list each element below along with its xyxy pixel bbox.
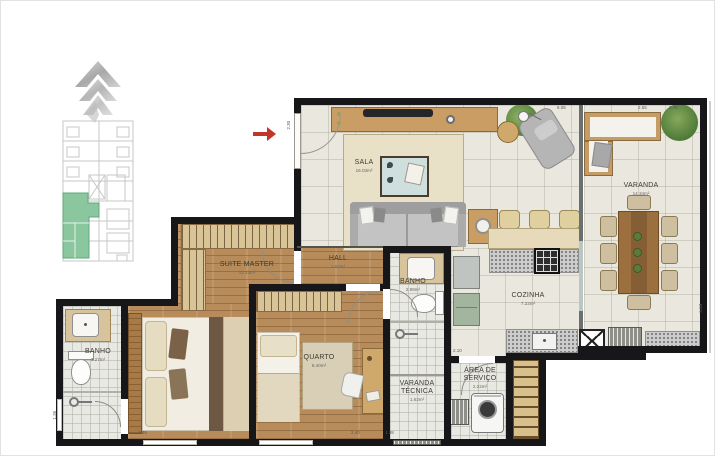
plant-varanda-icon — [661, 104, 698, 141]
dimension-text: 2.10 — [453, 349, 462, 354]
wall-suite-top — [171, 217, 301, 224]
floor-hall — [301, 248, 383, 284]
threshold-sala-hall — [297, 246, 383, 248]
wall-banho-top — [56, 299, 178, 306]
washing-machine-panel — [474, 395, 501, 397]
bar-stool — [499, 210, 520, 229]
wall-sala-left-b — [294, 169, 301, 217]
bar-stool — [529, 210, 550, 229]
kitchen-bar-counter — [488, 228, 581, 249]
bench-cushion — [590, 117, 656, 137]
tv — [363, 109, 433, 117]
closet-suite-top — [181, 224, 299, 249]
kitchen-cabinet — [453, 256, 480, 289]
coffee-table-decor — [387, 162, 393, 168]
divider-varanda-tecnica — [390, 374, 444, 376]
dimension-text: 1.36 — [53, 411, 58, 420]
toilet-bowl — [71, 359, 91, 385]
faucet-icon — [543, 339, 546, 342]
wall-banho-social-top — [383, 246, 451, 253]
shower-divider — [63, 391, 121, 393]
washing-machine-door — [478, 400, 497, 419]
window-suite — [143, 440, 197, 445]
dining-chair — [661, 243, 678, 264]
bed-pillow — [145, 321, 167, 371]
kitchen-counter-left — [489, 249, 534, 273]
stove — [534, 248, 560, 274]
desk-lamp-icon — [367, 356, 372, 361]
faucet-icon — [84, 323, 87, 326]
dining-chair — [661, 216, 678, 237]
round-side-table — [497, 121, 519, 143]
closet-quarto — [256, 291, 342, 312]
entry-door-leaf — [294, 113, 301, 169]
window-quarto — [259, 440, 313, 445]
bed-runner — [209, 317, 223, 431]
bed-pillow — [145, 377, 167, 427]
wall-sala-left-a — [294, 98, 301, 113]
wall-banho-social-right — [444, 246, 451, 356]
dimension-text: 5.58 — [699, 304, 704, 313]
sofa-armrest — [350, 214, 358, 247]
service-ladder — [513, 360, 539, 439]
sofa-pillow-white — [443, 206, 459, 225]
floor-lamp-icon — [518, 111, 529, 122]
sofa-pillow-gray — [430, 207, 443, 222]
louver-varanda-tecnica — [393, 440, 441, 445]
wall-shaft-right — [539, 360, 546, 446]
dining-chair — [627, 295, 651, 310]
wall-shaft-left — [506, 353, 513, 446]
wall-kitchen-bottom — [506, 353, 646, 360]
wall-servico-top-b — [495, 356, 513, 363]
wall-suite-left — [171, 217, 178, 304]
sofa-seam — [406, 214, 408, 247]
highlighted-unit — [63, 193, 99, 258]
dimension-text: 6.05 — [557, 106, 566, 111]
single-bed-pillow — [260, 335, 297, 357]
bed-blanket — [223, 317, 250, 431]
kitchen-counter-right — [559, 249, 579, 273]
table-plant-icon — [633, 232, 642, 241]
bar-stool — [559, 210, 580, 229]
dining-chair — [600, 216, 617, 237]
bed-accent-pillow — [168, 368, 188, 400]
wall-varanda-bottom — [578, 346, 707, 353]
wall-banho-suite-stub — [121, 434, 128, 439]
window-banho-suite — [57, 399, 62, 431]
toilet-tank — [435, 291, 444, 315]
dining-chair — [600, 243, 617, 264]
fridge — [453, 293, 480, 326]
floor-varanda-tecnica — [390, 376, 444, 439]
console-speaker-icon — [446, 115, 455, 124]
dining-chair — [627, 195, 651, 210]
dimension-text: 2.40 — [351, 431, 360, 436]
wall-banho-suite-right — [121, 306, 128, 399]
floor-plan-canvas: SALA 16.03m² VARANDA 14.34m² COZINHA 7.2… — [0, 0, 715, 456]
wall-top — [297, 98, 707, 105]
dimension-text: 2.55 — [638, 106, 647, 111]
entry-arrow-icon — [253, 132, 267, 136]
dimension-text: 2.30 — [287, 121, 292, 130]
wall-banho-social-left-a — [383, 246, 390, 289]
bench-pillow — [591, 142, 612, 168]
bed-headboard — [128, 313, 142, 434]
balcony-rail-line — [709, 101, 711, 353]
glass-sliding-door — [579, 241, 583, 311]
dining-chair — [600, 270, 617, 291]
entry-arrow-head-icon — [267, 127, 276, 141]
dimension-text: 1.38 — [385, 431, 394, 436]
sofa-pillow-gray — [373, 207, 386, 222]
single-bed-blanket — [258, 373, 299, 422]
desk — [362, 348, 384, 414]
wall-banho-social-left-b — [383, 319, 390, 439]
sofa-pillow-white — [359, 206, 375, 225]
wall-servico-left — [444, 356, 451, 446]
coffee-table-decor — [387, 177, 393, 183]
bathroom-sink — [407, 257, 435, 280]
shower-arm — [78, 401, 92, 403]
dimension-text: 2.76 — [669, 106, 678, 111]
dining-chair — [661, 270, 678, 291]
wall-quarto-top-a — [249, 284, 346, 291]
closet-suite-side — [181, 249, 206, 311]
wall-suite-quarto-divider — [249, 284, 256, 439]
fridge-handle — [456, 307, 477, 308]
dimension-text: 2.89 — [138, 431, 147, 436]
building-key-plan — [53, 113, 145, 271]
table-plant-icon — [633, 248, 642, 257]
sofa-armrest — [458, 214, 466, 247]
shower-arm — [404, 333, 418, 335]
wall-servico-top-a — [451, 356, 459, 363]
bed-accent-pillow — [168, 328, 189, 360]
wall-right — [700, 98, 707, 353]
shower-divider — [390, 321, 444, 323]
table-plant-icon — [633, 264, 642, 273]
